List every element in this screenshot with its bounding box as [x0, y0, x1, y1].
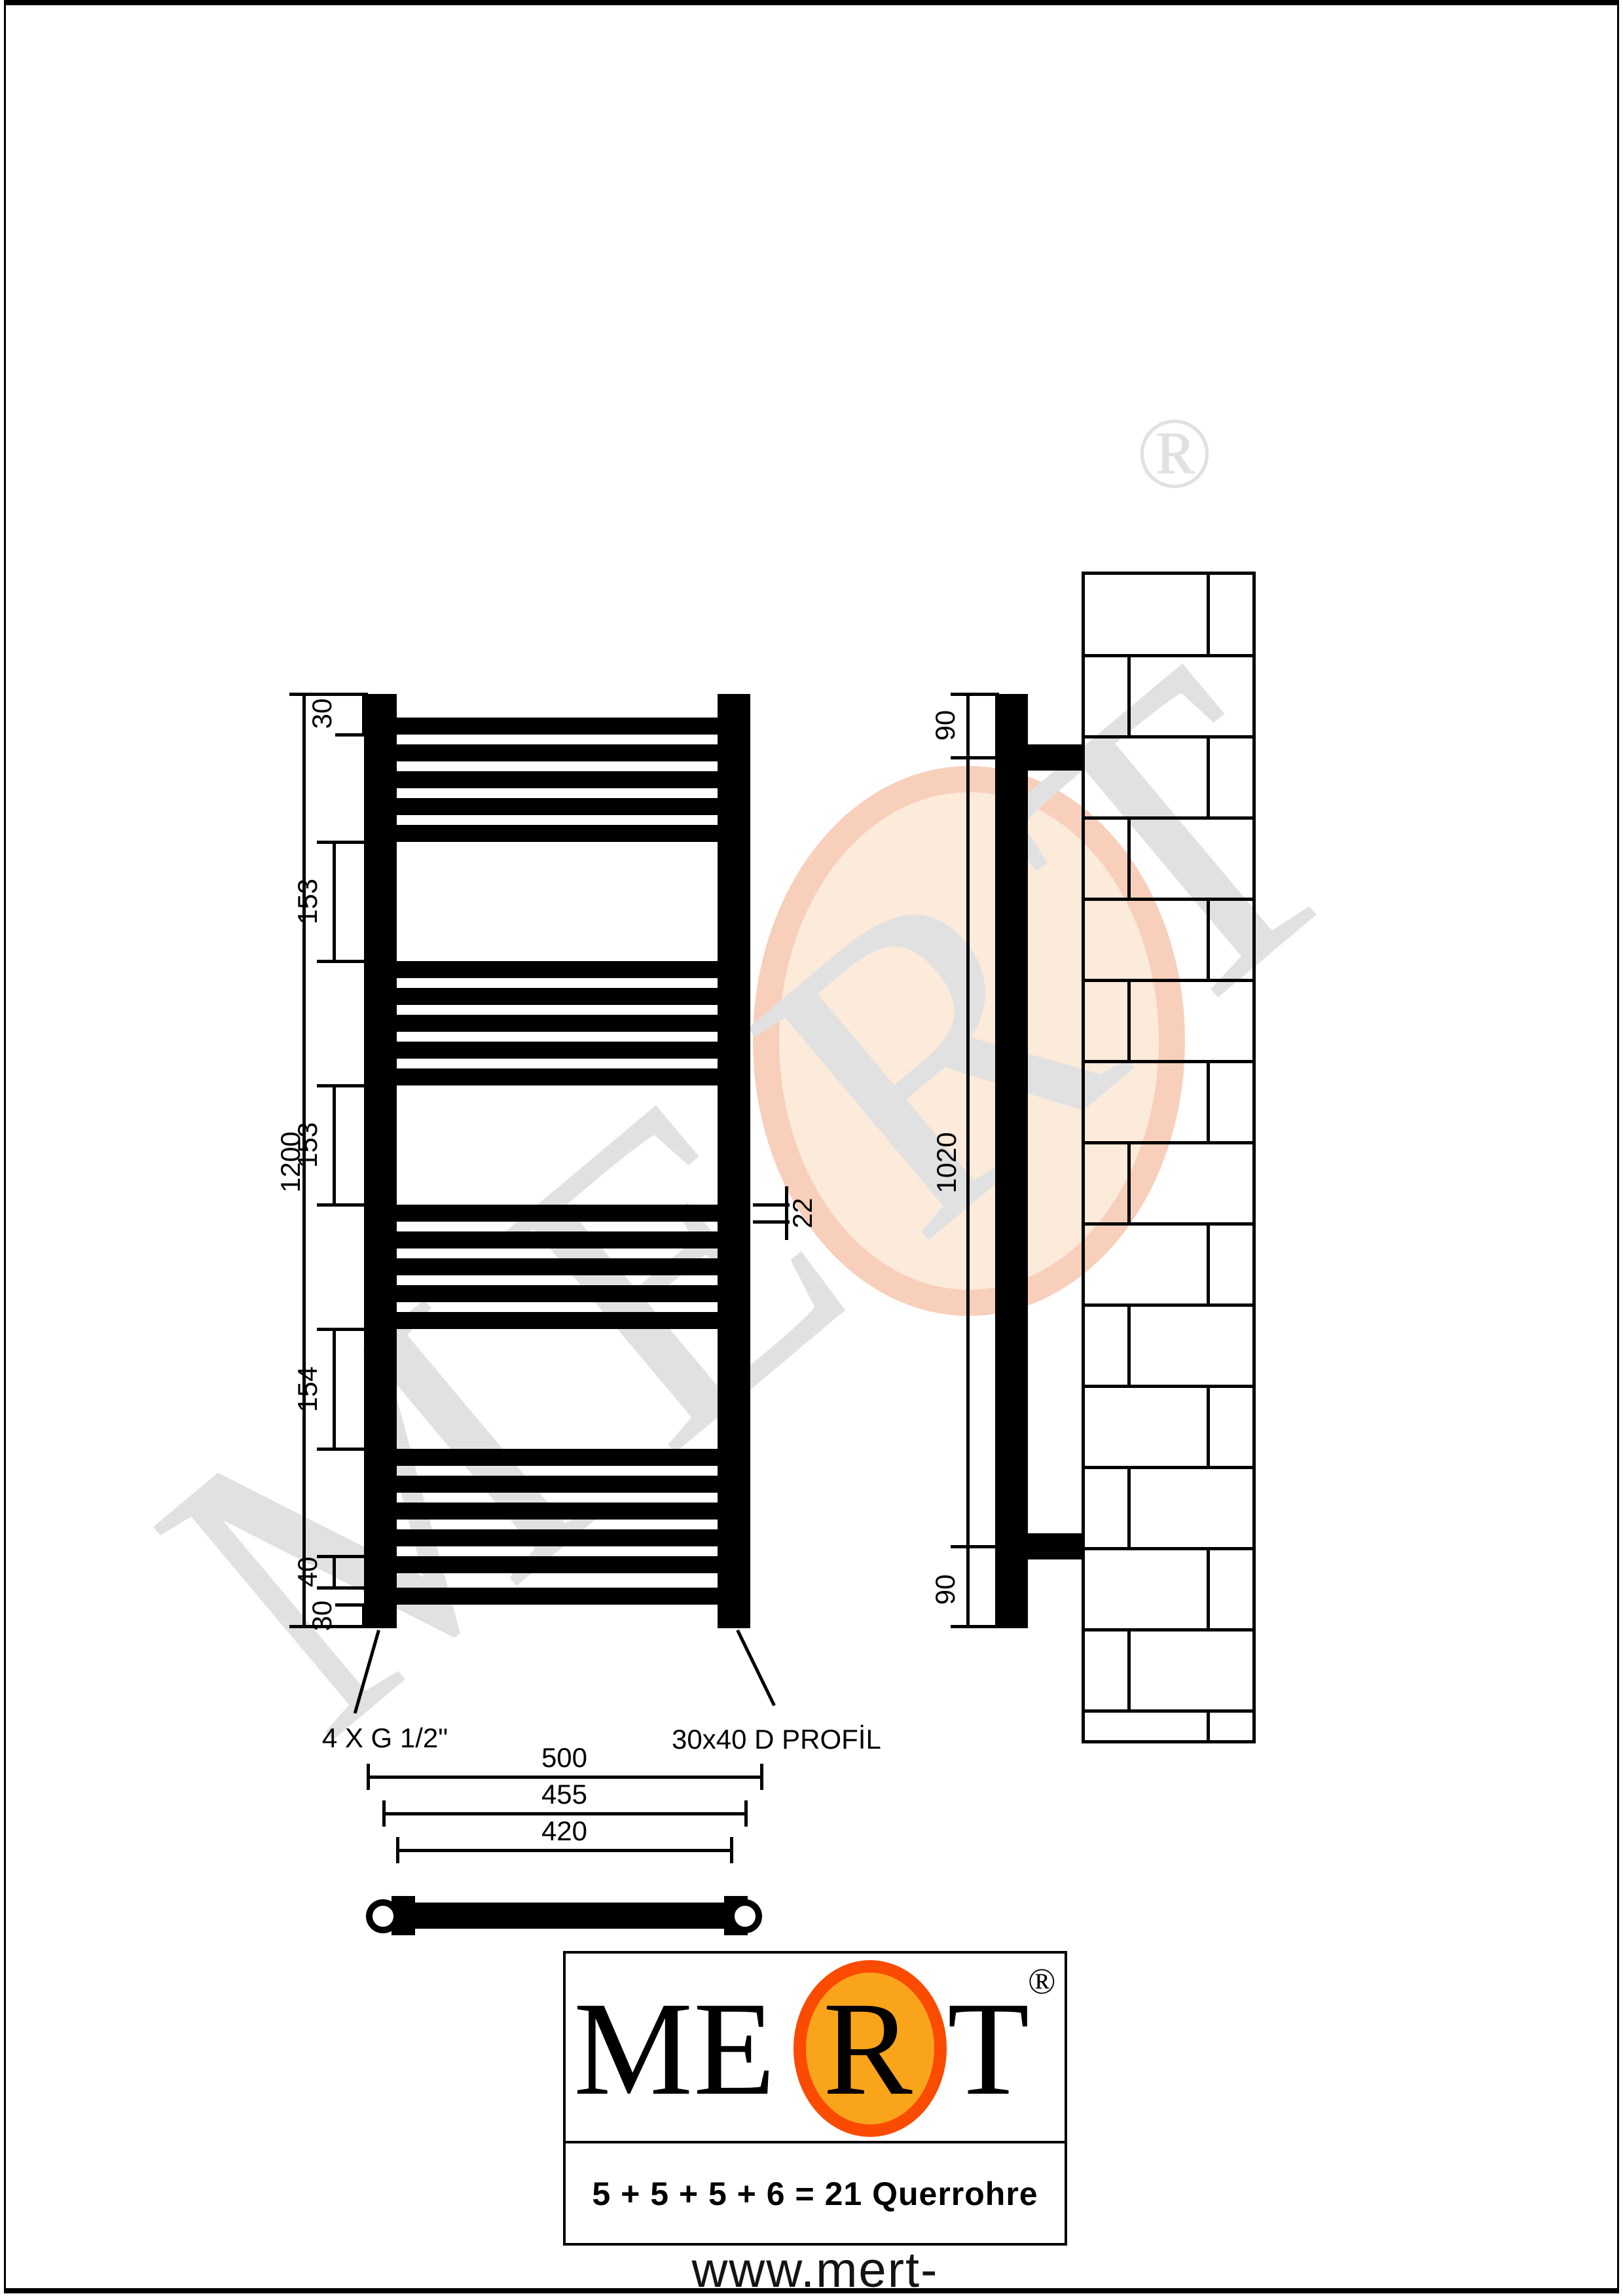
drawing-page: MERT ® 12003015315315440302290102090 500…	[0, 0, 1623, 2296]
page-frame-border	[4, 0, 1619, 2293]
